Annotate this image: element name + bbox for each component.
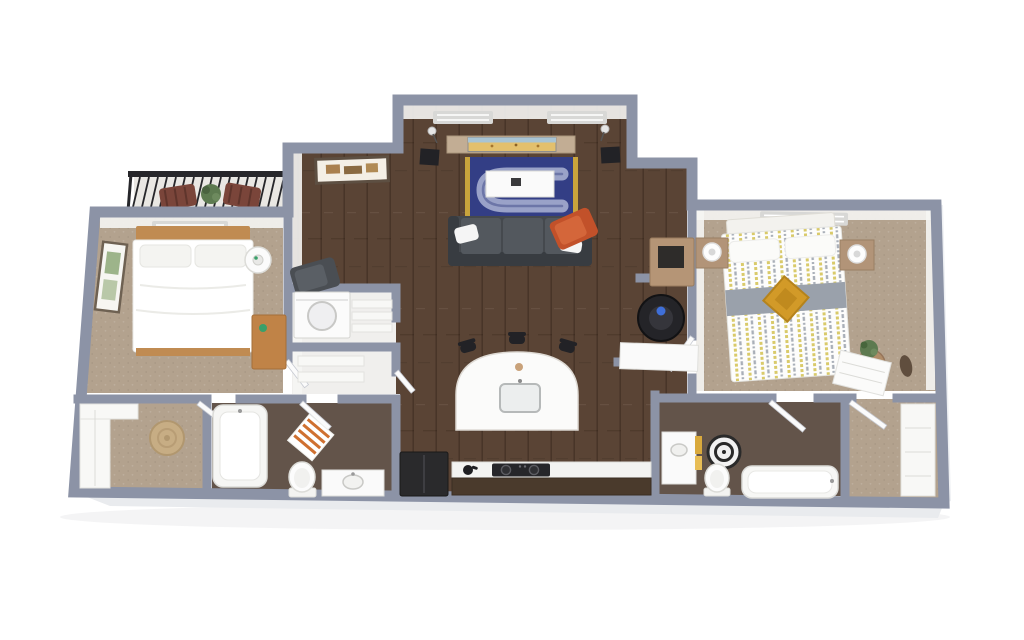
walk-in-closet-2 bbox=[901, 404, 935, 496]
floor-plan-svg bbox=[0, 0, 1024, 640]
balcony-plant bbox=[201, 184, 221, 204]
linen-shelf bbox=[298, 356, 364, 366]
island-bowl bbox=[515, 363, 523, 371]
living-wall-art bbox=[316, 157, 389, 183]
washer bbox=[294, 292, 350, 338]
floor-plan-image bbox=[0, 0, 1024, 640]
refrigerator bbox=[400, 452, 448, 496]
bathtub1 bbox=[213, 405, 267, 487]
bedroom1-lamp-table bbox=[245, 247, 271, 273]
cooktop bbox=[492, 464, 550, 477]
kitchen-island bbox=[456, 352, 578, 430]
bed-footboard bbox=[136, 348, 250, 356]
bedroom1-desk bbox=[252, 315, 286, 369]
closet2-shelving bbox=[901, 404, 935, 496]
bathtub2 bbox=[742, 466, 838, 498]
bar-cabinet bbox=[650, 238, 694, 286]
linen-shelf bbox=[298, 372, 364, 382]
trash-can bbox=[638, 295, 684, 341]
toilet1 bbox=[289, 462, 316, 497]
laundry-shelves bbox=[352, 300, 392, 332]
ceiling-vent-left bbox=[433, 111, 493, 124]
kitchen-cabinets bbox=[452, 478, 651, 495]
toilet2 bbox=[704, 464, 730, 496]
island-faucet bbox=[518, 379, 522, 383]
balcony-railing-post bbox=[128, 174, 131, 211]
vanity2 bbox=[662, 432, 702, 484]
sideboard bbox=[620, 343, 699, 372]
vanity1 bbox=[322, 470, 384, 496]
nightstand-left bbox=[696, 238, 728, 268]
speaker-left-icon bbox=[419, 148, 439, 165]
ceiling-vent-right bbox=[547, 111, 607, 124]
bar-stool-center bbox=[508, 332, 526, 344]
bedroom1-bed bbox=[133, 226, 253, 356]
towel-yellow-2 bbox=[695, 456, 702, 470]
bed2-pillow-left bbox=[729, 238, 780, 262]
tv bbox=[468, 138, 556, 152]
towel-yellow bbox=[695, 436, 702, 454]
nightstand-right bbox=[840, 240, 874, 270]
bed2-pillow-right bbox=[785, 234, 836, 258]
speaker-right-icon bbox=[601, 146, 621, 163]
balcony-railing-bar bbox=[128, 171, 290, 177]
kitchen-counter bbox=[452, 462, 651, 478]
black-box bbox=[658, 246, 684, 268]
coffee-table bbox=[486, 171, 554, 197]
closet1-shelving-top bbox=[80, 404, 138, 419]
striped-round-rug bbox=[708, 436, 740, 468]
bedroom2-bed bbox=[720, 212, 851, 382]
jute-rug bbox=[150, 421, 184, 455]
